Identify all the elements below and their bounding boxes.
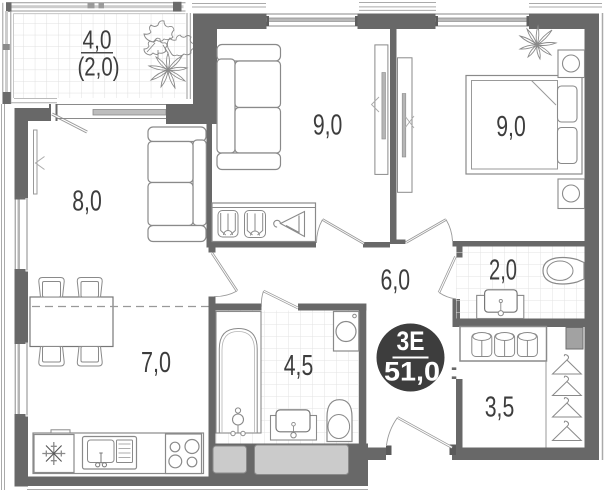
svg-text:9,0: 9,0 [496,111,526,143]
svg-text:7,0: 7,0 [141,347,171,379]
svg-text:2,0: 2,0 [489,255,517,287]
svg-text:51,0: 51,0 [384,357,440,387]
svg-text:9,0: 9,0 [313,110,343,142]
svg-text:8,0: 8,0 [72,186,102,218]
svg-text:3,5: 3,5 [485,392,515,424]
svg-text:3Е: 3Е [397,326,425,356]
svg-text:4,0: 4,0 [83,25,112,55]
svg-text:6,0: 6,0 [381,265,411,297]
svg-text:4,5: 4,5 [284,350,314,382]
svg-text:(2,0): (2,0) [78,52,120,82]
